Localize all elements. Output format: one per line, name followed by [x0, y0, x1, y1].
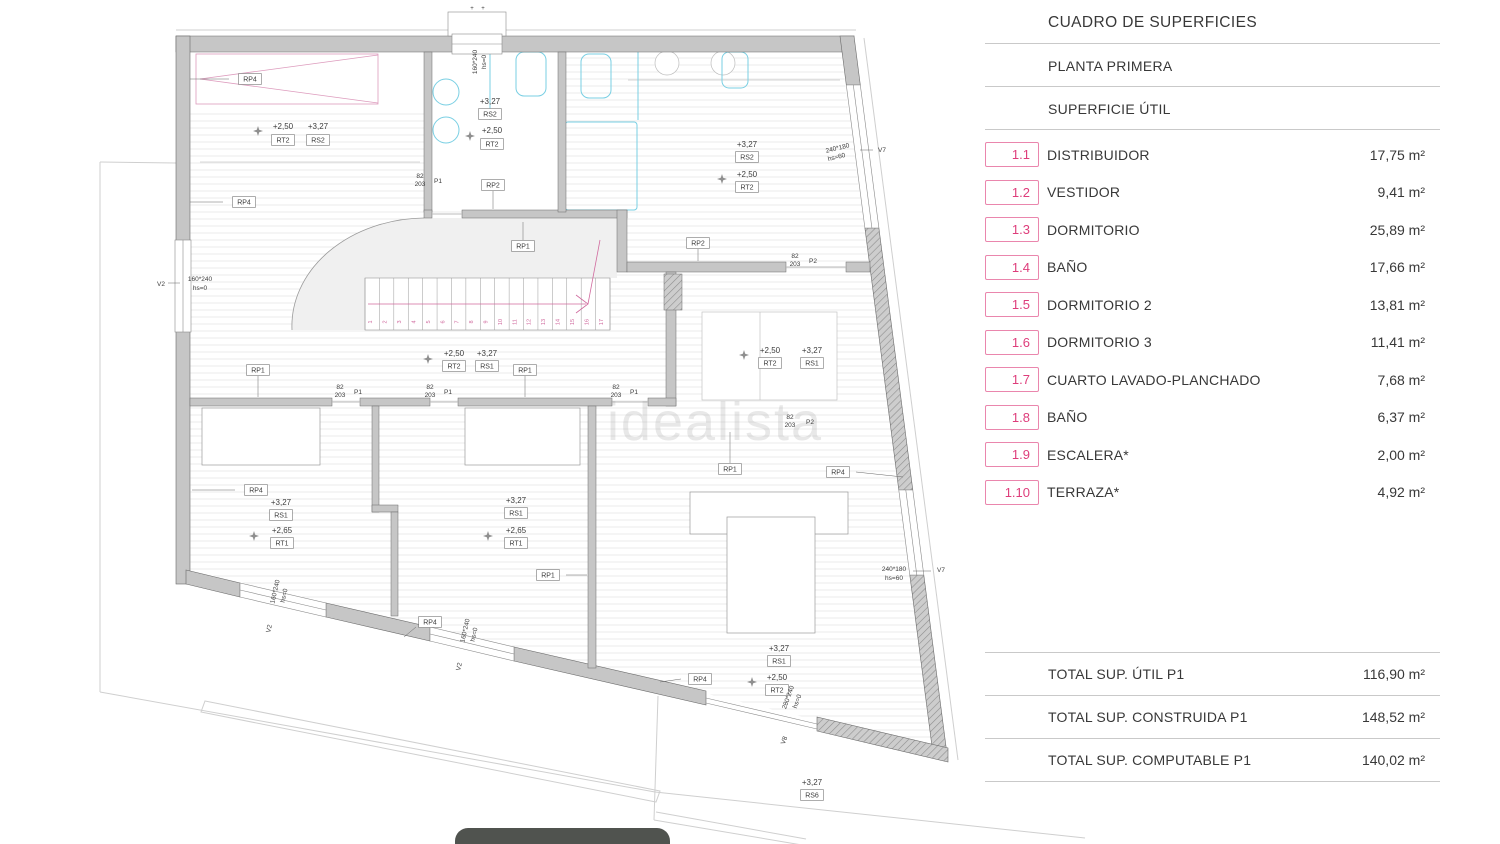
row-label: VESTIDOR: [1047, 184, 1120, 200]
surface-row: 1.1DISTRIBUIDOR17,75 m²: [985, 136, 1440, 174]
stair-number: 12: [527, 319, 533, 325]
surface-row: 1.7CUARTO LAVADO-PLANCHADO7,68 m²: [985, 361, 1440, 399]
plan-text-label: 203: [425, 392, 436, 399]
svg-text:RP1: RP1: [541, 573, 555, 580]
ref-label-box: RT1: [271, 538, 294, 549]
ref-label-box: RS1: [476, 361, 499, 372]
svg-text:RS1: RS1: [509, 511, 523, 518]
plan-text-label: +3,27: [737, 140, 758, 149]
plan-text-label: +2,50: [444, 349, 465, 358]
level-star-icon: [747, 677, 757, 687]
surface-row: 1.4BAÑO17,66 m²: [985, 249, 1440, 287]
svg-text:RP4: RP4: [831, 470, 845, 477]
surface-row: 1.5DORMITORIO 213,81 m²: [985, 286, 1440, 324]
row-code-box: 1.7: [985, 367, 1039, 392]
row-code: 1.9: [1012, 447, 1038, 462]
plan-text-label: 82: [336, 384, 344, 391]
stair-number: 3: [397, 320, 403, 323]
plan-text-label: P2: [809, 258, 817, 265]
plan-text-label: V7: [878, 147, 886, 154]
row-code: 1.1: [1012, 147, 1038, 162]
ref-label-box: RP4: [233, 197, 256, 208]
stair-number: 6: [440, 320, 446, 323]
row-value: 2,00 m²: [1378, 447, 1440, 463]
ref-label-box: RS1: [270, 510, 293, 521]
row-value: 17,75 m²: [1370, 147, 1440, 163]
ref-label-box: RP2: [687, 238, 710, 249]
ref-label-box: RP1: [537, 570, 560, 581]
plan-text-label: V2: [157, 281, 165, 288]
plan-text-label: +2,50: [760, 346, 781, 355]
ref-label-box: RT2: [736, 182, 759, 193]
ref-label-box: RT1: [505, 538, 528, 549]
bed-main: [727, 517, 815, 633]
totals-rows: TOTAL SUP. ÚTIL P1116,90 m²TOTAL SUP. CO…: [985, 652, 1440, 782]
plan-text-label: 82: [426, 384, 434, 391]
stair-number: 2: [383, 320, 389, 323]
row-label: ESCALERA*: [1047, 447, 1129, 463]
ref-label-box: RT2: [766, 685, 789, 696]
svg-text:RP2: RP2: [486, 183, 500, 190]
plan-text-label: 203: [790, 261, 801, 268]
ref-label-box: RT2: [481, 139, 504, 150]
svg-text:RP1: RP1: [723, 467, 737, 474]
plan-text-label: 160*240: [188, 276, 213, 283]
row-code-box: 1.5: [985, 292, 1039, 317]
row-code-box: 1.3: [985, 217, 1039, 242]
row-code-box: 1.6: [985, 330, 1039, 355]
stair-number: 4: [411, 320, 417, 323]
svg-text:RP4: RP4: [237, 200, 251, 207]
plan-text-label: +2,50: [273, 122, 294, 131]
stair-number: 16: [584, 319, 590, 325]
svg-text:RT2: RT2: [770, 688, 783, 695]
total-value: 116,90 m²: [1363, 666, 1440, 682]
plan-text-label: P1: [444, 389, 452, 396]
toilet-icon: [581, 54, 611, 98]
row-code-box: 1.9: [985, 442, 1039, 467]
plan-text-label: 203: [415, 181, 426, 188]
ref-label-box: RS2: [736, 152, 759, 163]
stair-number: 8: [469, 320, 475, 323]
plan-text-label: +3,27: [506, 496, 527, 505]
plan-text-label: +3,27: [271, 498, 292, 507]
ref-label-box: RS1: [801, 358, 824, 369]
ref-label-box: RP4: [245, 485, 268, 496]
surface-row: 1.8BAÑO6,37 m²: [985, 399, 1440, 437]
top-protrusion: [448, 12, 506, 36]
row-code-box: 1.1: [985, 142, 1039, 167]
plan-text-label: +3,27: [477, 349, 498, 358]
stair-number: 17: [599, 319, 605, 325]
plan-text-label: +3,27: [802, 778, 823, 787]
plan-text-label: 203: [335, 392, 346, 399]
svg-text:RS2: RS2: [483, 112, 497, 119]
plan-text-label: +: [481, 6, 485, 12]
surface-row: 1.10TERRAZA*4,92 m²: [985, 474, 1440, 512]
panel-subtitle: PLANTA PRIMERA: [985, 44, 1440, 87]
wardrobe: [702, 312, 837, 400]
stair-number: 11: [512, 319, 518, 325]
svg-text:RS6: RS6: [805, 793, 819, 800]
row-label: DISTRIBUIDOR: [1047, 147, 1150, 163]
svg-text:RS1: RS1: [274, 513, 288, 520]
plan-text-label: P1: [354, 389, 362, 396]
row-label: BAÑO: [1047, 409, 1087, 425]
svg-text:RT2: RT2: [740, 185, 753, 192]
svg-text:RS1: RS1: [772, 659, 786, 666]
plan-text-label: +3,27: [480, 97, 501, 106]
ref-label-box: RT2: [759, 358, 782, 369]
plan-text-label: +2,65: [506, 526, 527, 535]
surface-rows: 1.1DISTRIBUIDOR17,75 m²1.2VESTIDOR9,41 m…: [985, 130, 1440, 511]
plan-text-label: 82: [786, 414, 794, 421]
stair-number: 1: [368, 320, 374, 323]
ref-label-box: RP2: [482, 180, 505, 191]
ref-label-box: RS1: [768, 656, 791, 667]
svg-text:RP4: RP4: [249, 488, 263, 495]
ref-label-box: RP1: [514, 365, 537, 376]
ref-label-box: RS2: [307, 135, 330, 146]
svg-text:RS2: RS2: [311, 138, 325, 145]
row-label: TERRAZA*: [1047, 484, 1119, 500]
plan-text-label: +2,50: [482, 126, 503, 135]
plan-text-label: V2: [265, 624, 274, 634]
ref-label-box: RS6: [801, 790, 824, 801]
ref-label-box: RP4: [239, 74, 262, 85]
stair-number: 10: [498, 319, 504, 325]
plan-text-label: 203: [785, 422, 796, 429]
ref-label-box: RP1: [247, 365, 270, 376]
plan-text-label: 203: [611, 392, 622, 399]
row-value: 17,66 m²: [1370, 259, 1440, 275]
svg-text:RP1: RP1: [251, 368, 265, 375]
stair-number: 7: [455, 320, 461, 323]
stair-number: 13: [541, 319, 547, 325]
row-value: 11,41 m²: [1371, 334, 1440, 350]
ref-label-box: RP1: [719, 464, 742, 475]
row-code: 1.8: [1012, 410, 1038, 425]
stair-number: 15: [570, 319, 576, 325]
total-label: TOTAL SUP. ÚTIL P1: [1048, 666, 1184, 682]
row-code: 1.7: [1012, 372, 1038, 387]
ref-label-box: RP4: [419, 617, 442, 628]
svg-text:RS1: RS1: [480, 364, 494, 371]
ref-label-box: RS2: [479, 109, 502, 120]
washbasin: [655, 51, 679, 75]
row-code-box: 1.10: [985, 480, 1039, 505]
row-label: CUARTO LAVADO-PLANCHADO: [1047, 372, 1261, 388]
screenshot: 1234567891011121314151617: [0, 0, 1500, 844]
row-value: 13,81 m²: [1370, 297, 1440, 313]
row-value: 9,41 m²: [1378, 184, 1440, 200]
row-code: 1.2: [1012, 185, 1038, 200]
row-code-box: 1.4: [985, 255, 1039, 280]
svg-text:RP1: RP1: [516, 244, 530, 251]
total-row: TOTAL SUP. ÚTIL P1116,90 m²: [985, 652, 1440, 695]
plan-text-label: hs=0: [792, 693, 804, 709]
ref-label-box: RS1: [505, 508, 528, 519]
ref-label-box: RP1: [512, 241, 535, 252]
row-value: 4,92 m²: [1378, 484, 1440, 500]
row-value: 6,37 m²: [1378, 409, 1440, 425]
surface-row: 1.6DORMITORIO 311,41 m²: [985, 324, 1440, 362]
plan-text-label: +2,65: [272, 526, 293, 535]
panel-section: SUPERFICIE ÚTIL: [985, 87, 1440, 130]
surface-row: 1.2VESTIDOR9,41 m²: [985, 174, 1440, 212]
ref-label-box: RP4: [827, 467, 850, 478]
total-value: 148,52 m²: [1362, 709, 1440, 725]
level-star-icon: [249, 531, 259, 541]
svg-text:RP1: RP1: [518, 368, 532, 375]
row-code: 1.5: [1012, 297, 1038, 312]
plan-text-label: hs=0: [481, 54, 488, 69]
total-label: TOTAL SUP. COMPUTABLE P1: [1048, 752, 1251, 768]
plan-text-label: 82: [416, 173, 424, 180]
row-label: DORMITORIO 2: [1047, 297, 1152, 313]
plan-text-label: 240*180: [882, 566, 907, 573]
stair-number: 5: [426, 320, 432, 323]
svg-text:RT2: RT2: [485, 142, 498, 149]
svg-text:RT2: RT2: [447, 364, 460, 371]
plan-text-label: 82: [612, 384, 620, 391]
plan-text-label: hs=60: [885, 575, 903, 582]
svg-text:RP4: RP4: [693, 677, 707, 684]
column: [664, 274, 682, 310]
ref-label-box: RT2: [272, 135, 295, 146]
plan-text-label: +2,50: [737, 170, 758, 179]
svg-text:RT1: RT1: [275, 541, 288, 548]
floor-plan-svg: 1234567891011121314151617: [0, 0, 1100, 844]
plan-text-label: +: [470, 6, 474, 12]
total-row: TOTAL SUP. COMPUTABLE P1140,02 m²: [985, 738, 1440, 782]
svg-text:RP2: RP2: [691, 241, 705, 248]
svg-text:RS1: RS1: [805, 361, 819, 368]
bottom-button[interactable]: [455, 828, 670, 844]
surface-row: 1.9ESCALERA*2,00 m²: [985, 436, 1440, 474]
ref-label-box: RP4: [689, 674, 712, 685]
svg-text:RT2: RT2: [276, 138, 289, 145]
row-code: 1.6: [1012, 335, 1038, 350]
row-code-box: 1.8: [985, 405, 1039, 430]
surface-row: 1.3DORMITORIO25,89 m²: [985, 211, 1440, 249]
stair-number: 9: [484, 320, 490, 323]
svg-text:RS2: RS2: [740, 155, 754, 162]
plan-text-label: V8: [780, 735, 789, 745]
svg-text:RT1: RT1: [509, 541, 522, 548]
plan-text-label: V2: [455, 662, 464, 672]
plan-text-label: +3,27: [802, 346, 823, 355]
row-value: 7,68 m²: [1378, 372, 1440, 388]
level-star-icon: [717, 174, 727, 184]
level-star-icon: [423, 354, 433, 364]
bed-room2: [202, 408, 320, 465]
plan-text-label: 160*240: [472, 50, 479, 75]
plan-text-label: 82: [791, 253, 799, 260]
total-label: TOTAL SUP. CONSTRUIDA P1: [1048, 709, 1248, 725]
row-label: DORMITORIO 3: [1047, 334, 1152, 350]
bed-room3: [465, 408, 580, 465]
plan-text-label: P2: [806, 419, 814, 426]
plan-text-label: P1: [630, 389, 638, 396]
surface-table-panel: CUADRO DE SUPERFICIES PLANTA PRIMERA SUP…: [985, 0, 1440, 800]
svg-text:RP4: RP4: [243, 77, 257, 84]
ref-label-box: RT2: [443, 361, 466, 372]
plan-text-label: hs=0: [193, 285, 208, 292]
total-value: 140,02 m²: [1362, 752, 1440, 768]
total-row: TOTAL SUP. CONSTRUIDA P1148,52 m²: [985, 695, 1440, 738]
svg-text:RP4: RP4: [423, 620, 437, 627]
floor-plan: 1234567891011121314151617: [0, 0, 1100, 844]
svg-text:RT2: RT2: [763, 361, 776, 368]
row-label: DORMITORIO: [1047, 222, 1140, 238]
row-code-box: 1.2: [985, 180, 1039, 205]
row-code: 1.3: [1012, 222, 1038, 237]
stair-number: 14: [556, 319, 562, 325]
row-label: BAÑO: [1047, 259, 1087, 275]
plan-text-label: V7: [937, 567, 945, 574]
panel-title: CUADRO DE SUPERFICIES: [985, 0, 1440, 44]
row-code: 1.10: [1005, 485, 1038, 500]
level-star-icon: [483, 531, 493, 541]
plan-text-label: P1: [434, 178, 442, 185]
plan-text-label: +3,27: [308, 122, 329, 131]
row-code: 1.4: [1012, 260, 1038, 275]
row-value: 25,89 m²: [1370, 222, 1440, 238]
plan-text-label: +3,27: [769, 644, 790, 653]
plan-text-label: +2,50: [767, 673, 788, 682]
